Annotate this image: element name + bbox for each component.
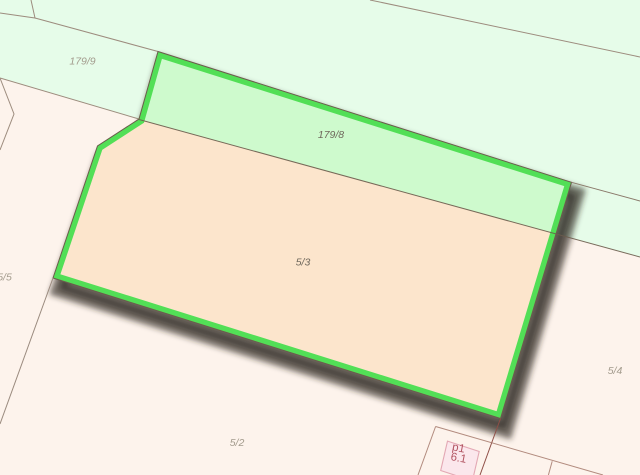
svg-text:5/4: 5/4 (608, 365, 623, 377)
svg-text:5/2: 5/2 (230, 437, 245, 449)
svg-text:179/9: 179/9 (69, 56, 95, 68)
svg-text:179/8: 179/8 (318, 129, 344, 141)
svg-text:5/3: 5/3 (296, 257, 311, 269)
svg-text:5/5: 5/5 (0, 272, 12, 284)
